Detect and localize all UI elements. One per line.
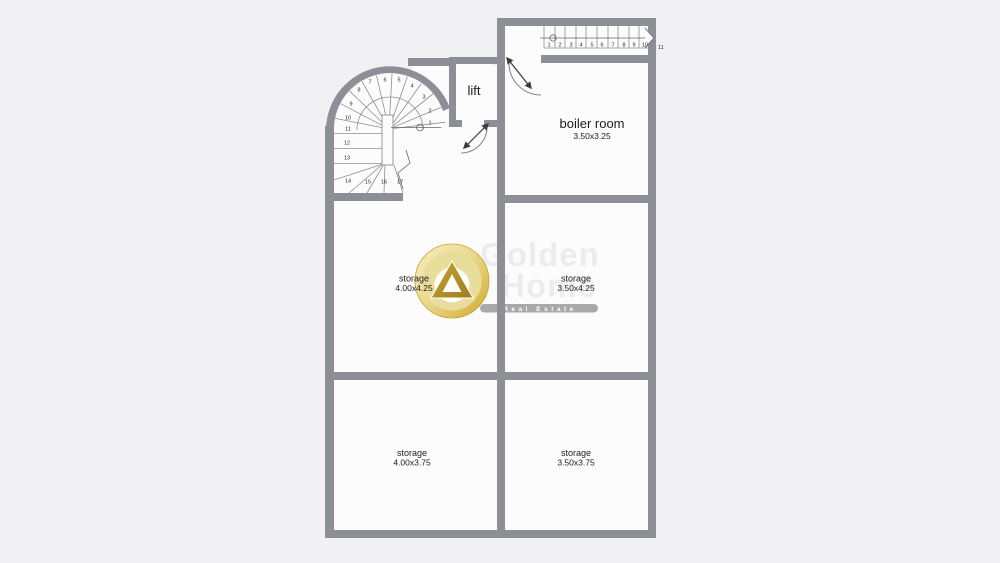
step-number: 6	[383, 78, 386, 84]
room-label-storage-bottom-right: storage	[561, 448, 591, 458]
room-dims-storage-bottom-left: 4.00x3.75	[393, 458, 431, 468]
room-dims-storage-bottom-right: 3.50x3.75	[557, 458, 595, 468]
room-label-boiler: boiler room	[559, 116, 624, 131]
room-label-storage-mid-right: storage	[561, 274, 591, 284]
step-number: 15	[365, 180, 371, 186]
step-number: 11	[658, 45, 664, 51]
step-number: 9	[349, 102, 352, 108]
room-label-storage-bottom-left: storage	[397, 448, 427, 458]
step-number: 9	[632, 43, 635, 49]
step-number: 17	[397, 180, 403, 186]
wall-mid-horizontal	[333, 372, 648, 380]
floor-plan-canvas: Golden Home Real Estate	[0, 0, 1000, 563]
room-label-storage-mid-left: storage	[399, 274, 429, 284]
wall-center-vertical	[497, 26, 505, 530]
step-number: 3	[422, 95, 425, 101]
spiral-newel-column	[382, 115, 393, 165]
wall-left	[325, 126, 334, 538]
wall-boiler-bottom	[505, 195, 648, 203]
step-number: 7	[611, 43, 614, 49]
wall-top	[497, 18, 656, 26]
wall-right	[648, 18, 656, 538]
step-number: 1	[547, 43, 550, 49]
watermark-tagline: Real Estate	[503, 306, 577, 313]
room-label-lift: lift	[468, 83, 481, 98]
step-number: 4	[579, 43, 582, 49]
floor-plan: Golden Home Real Estate	[0, 0, 1000, 563]
step-number: 16	[381, 180, 387, 186]
step-number: 10	[642, 43, 648, 49]
room-dims-storage-mid-left: 4.00x4.25	[395, 283, 433, 293]
step-number: 2	[558, 43, 561, 49]
room-dims-storage-mid-right: 3.50x4.25	[557, 283, 595, 293]
wall-bottom	[325, 530, 656, 538]
step-number: 8	[357, 88, 360, 94]
step-number: 6	[600, 43, 603, 49]
step-number: 10	[345, 116, 351, 122]
step-number: 12	[344, 141, 350, 147]
step-number: 7	[368, 80, 371, 86]
step-number: 3	[569, 43, 572, 49]
step-number: 5	[397, 78, 400, 84]
step-number: 8	[622, 43, 625, 49]
step-number: 4	[410, 84, 413, 90]
step-number: 11	[345, 127, 351, 133]
step-number: 1	[428, 121, 431, 127]
wall-lift-top	[449, 57, 497, 64]
wall-stair-bottom	[325, 193, 403, 201]
wall-lift-door-stub-left	[449, 120, 462, 127]
step-number: 13	[344, 156, 350, 162]
wall-boiler-top	[541, 55, 648, 63]
step-number: 14	[345, 179, 351, 185]
step-number: 2	[428, 109, 431, 115]
wall-arc-lift-connector	[408, 58, 456, 66]
floor-areas	[334, 26, 648, 530]
floor-left-block	[334, 126, 497, 530]
room-dims-boiler: 3.50x3.25	[573, 131, 611, 141]
step-number: 5	[590, 43, 593, 49]
wall-lift-left	[449, 57, 456, 127]
